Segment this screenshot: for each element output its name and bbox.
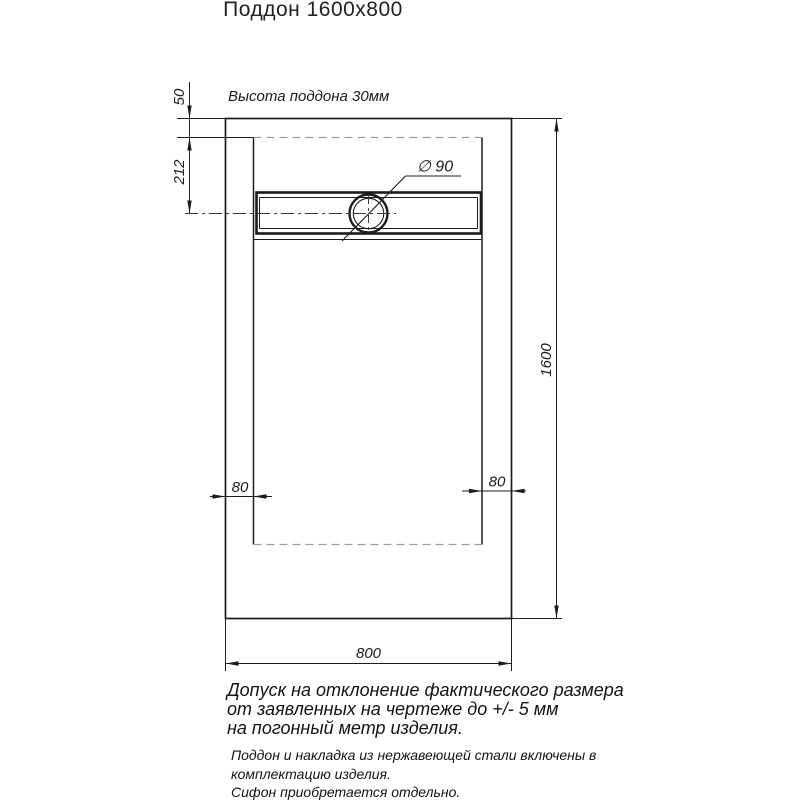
dim-50-label: 50 — [171, 88, 188, 105]
tolerance-note: Допуск на отклонение фактического размер… — [227, 681, 667, 738]
dim-50-arrow-down — [187, 106, 191, 119]
included-note-line2: комплектацию изделия. — [231, 765, 651, 784]
technical-drawing-page: { "title": "Поддон 1600x800", "drawing":… — [0, 0, 800, 800]
dim-drain-diameter-label: ∅ 90 — [417, 159, 453, 176]
dim-margin-left-80: 80 — [210, 479, 272, 499]
included-note-line1: Поддон и накладка из нержавеющей стали в… — [231, 746, 651, 765]
dim-80-left-arrow-b — [254, 494, 267, 498]
dim-80-left-label: 80 — [232, 479, 249, 496]
tolerance-note-line3: на погонный метр изделия. — [227, 719, 667, 738]
siphon-note-line: Сифон приобретается отдельно. — [231, 783, 651, 802]
dim-1600-label: 1600 — [538, 343, 555, 377]
dim-212-arrow-down — [187, 201, 191, 214]
drain-hole — [185, 195, 396, 233]
dim-212-arrow-up — [187, 138, 191, 151]
package-note: Поддон и накладка из нержавеющей стали в… — [231, 746, 651, 802]
tolerance-note-line1: Допуск на отклонение фактического размер… — [227, 681, 667, 700]
dim-1600-arrow-up — [554, 119, 558, 132]
dim-80-right-arrow-b — [512, 489, 525, 493]
dim-800-arrow-right — [499, 661, 512, 665]
dim-width-800: 800 — [226, 619, 512, 672]
dim-800-arrow-left — [226, 661, 239, 665]
dim-212-label: 212 — [171, 159, 188, 186]
dim-80-left-arrow-a — [213, 494, 226, 498]
height-note-label: Высота поддона 30мм — [228, 88, 389, 105]
dim-length-1600: 1600 — [512, 119, 563, 619]
dim-margin-right-80: 80 — [462, 474, 526, 494]
dim-1600-arrow-down — [554, 606, 558, 619]
dim-800-label: 800 — [356, 645, 382, 662]
tolerance-note-line2: от заявленных на чертеже до +/- 5 мм — [227, 700, 667, 719]
dim-80-right-label: 80 — [489, 474, 506, 491]
dim-80-right-arrow-a — [469, 489, 482, 493]
